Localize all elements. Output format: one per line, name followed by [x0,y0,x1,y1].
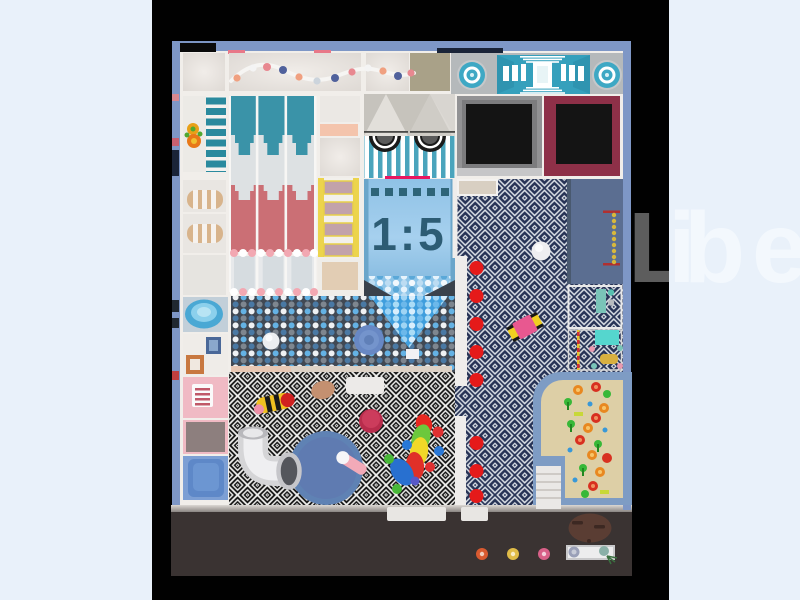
svg-text:e: e [752,192,800,304]
svg-text:b: b [684,192,745,304]
svg-text:1:5: 1:5 [371,208,446,260]
